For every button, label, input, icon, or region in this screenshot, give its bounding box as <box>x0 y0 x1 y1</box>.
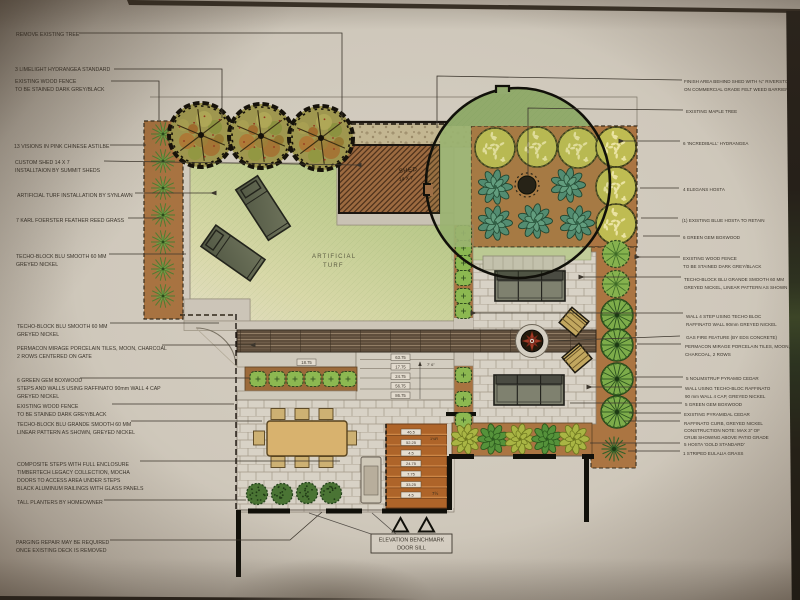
svg-text:TALL PLANTERS BY HOMEOWNER: TALL PLANTERS BY HOMEOWNER <box>17 500 103 506</box>
svg-text:5 NOLIMSTRUP PYRAMID CEDAR: 5 NOLIMSTRUP PYRAMID CEDAR <box>686 376 759 381</box>
svg-text:GREYED NICKEL: GREYED NICKEL <box>16 262 58 268</box>
svg-text:5 GREEN GEM BOXWOOD: 5 GREEN GEM BOXWOOD <box>685 402 743 407</box>
svg-text:FINISH AREA BEHIND SHED WITH ¾: FINISH AREA BEHIND SHED WITH ¾" RIVERSTO… <box>684 79 795 84</box>
svg-text:GREYED NICKEL: GREYED NICKEL <box>17 394 59 400</box>
svg-text:EXISTING MAPLE TREE: EXISTING MAPLE TREE <box>686 109 737 114</box>
svg-text:TURF: TURF <box>323 263 344 269</box>
svg-text:EXISTING WOOD FENCE: EXISTING WOOD FENCE <box>15 79 77 85</box>
svg-text:6 GREEN GEM BOXWOOD: 6 GREEN GEM BOXWOOD <box>17 378 82 384</box>
svg-text:CONSTRUCTION NOTE: MAX 3" OF: CONSTRUCTION NOTE: MAX 3" OF <box>684 428 760 433</box>
svg-text:GREYED NICKEL, LINEAR PATTERN: GREYED NICKEL, LINEAR PATTERN AS SHOWN <box>684 285 787 290</box>
svg-text:5 HOSTA 'GOLD STANDARD': 5 HOSTA 'GOLD STANDARD' <box>684 442 745 447</box>
svg-text:TECHO-BLOCK BLU GRANDE SMOOTH: TECHO-BLOCK BLU GRANDE SMOOTH 60 MM <box>684 277 784 282</box>
svg-text:PERMACON MIRAGE PORCELAIN TILE: PERMACON MIRAGE PORCELAIN TILES, MOON, <box>685 344 790 349</box>
svg-text:ELEVATION BENCHMARK: ELEVATION BENCHMARK <box>379 538 445 544</box>
svg-text:TECHO-BLOCK BLU SMOOTH 60 MM: TECHO-BLOCK BLU SMOOTH 60 MM <box>16 254 107 260</box>
svg-text:PARGING REPAIR MAY BE REQUIRED: PARGING REPAIR MAY BE REQUIRED <box>16 540 110 546</box>
svg-text:7.75: 7.75 <box>407 472 416 477</box>
svg-text:TECHO-BLOCK BLU GRANDE SMOOTH: TECHO-BLOCK BLU GRANDE SMOOTH 60 MM <box>17 422 131 428</box>
svg-text:BLACK ALUMINUM RAILINGS WITH G: BLACK ALUMINUM RAILINGS WITH GLASS PANEL… <box>17 486 144 492</box>
svg-text:TIMBERTECH LEGACY COLLECTION,: TIMBERTECH LEGACY COLLECTION, MOCHA <box>17 470 130 476</box>
svg-text:24.75: 24.75 <box>395 374 406 379</box>
svg-text:4.5: 4.5 <box>408 451 414 456</box>
svg-text:RAFFINATO WALL 90mm GREYED NIC: RAFFINATO WALL 90mm GREYED NICKEL <box>686 322 777 327</box>
svg-text:7 KARL FOERSTER FEATHER REED G: 7 KARL FOERSTER FEATHER REED GRASS <box>16 218 125 224</box>
svg-text:CHARCOAL, 2 ROWS: CHARCOAL, 2 ROWS <box>685 352 731 357</box>
svg-text:86.75: 86.75 <box>395 393 406 398</box>
svg-text:1¾R: 1¾R <box>430 437 438 441</box>
svg-text:ARTIFICIAL TURF INSTALLATION B: ARTIFICIAL TURF INSTALLATION BY SYNLAWN <box>17 193 133 199</box>
svg-text:56.75: 56.75 <box>395 384 406 389</box>
svg-text:EXISTING WOOD FENCE: EXISTING WOOD FENCE <box>17 404 79 410</box>
svg-text:13 VISIONS IN PINK CHINESE AST: 13 VISIONS IN PINK CHINESE ASTILBE <box>14 144 110 150</box>
svg-text:2 ROWS CENTERED ON GATE: 2 ROWS CENTERED ON GATE <box>17 354 92 360</box>
svg-text:WALL USING TECHO-BLOC RAFFINAT: WALL USING TECHO-BLOC RAFFINATO <box>685 386 771 391</box>
svg-text:RAFFINATO CURB, GREYED NICKEL: RAFFINATO CURB, GREYED NICKEL <box>684 421 763 426</box>
svg-text:LINEAR PATTERN AS SHOWN, GREYE: LINEAR PATTERN AS SHOWN, GREYED NICKEL <box>17 430 135 436</box>
svg-text:ARTIFICIAL: ARTIFICIAL <box>312 254 356 260</box>
svg-text:18.75: 18.75 <box>301 360 312 365</box>
svg-text:TO BE STAINED DARK GREY/BLACK: TO BE STAINED DARK GREY/BLACK <box>15 87 105 93</box>
svg-text:7½: 7½ <box>432 490 439 496</box>
svg-text:WALL 4 STEP USING TECHO BLOC: WALL 4 STEP USING TECHO BLOC <box>686 314 762 319</box>
svg-text:ON COMMERCIAL GRADE FELT WEED: ON COMMERCIAL GRADE FELT WEED BARRIER <box>684 87 789 92</box>
svg-text:17.75: 17.75 <box>395 365 406 370</box>
svg-text:90 mm WALL 4 CAP, GREYED NICK: 90 mm WALL 4 CAP, GREYED NICKEL <box>685 394 766 399</box>
svg-text:6 GREEN GEM BOXWOOD: 6 GREEN GEM BOXWOOD <box>683 235 741 240</box>
svg-text:3 LIMELIGHT HYDRANGEA STANDARD: 3 LIMELIGHT HYDRANGEA STANDARD <box>15 67 110 73</box>
svg-text:TECHO-BLOCK BLU SMOOTH 60 MM: TECHO-BLOCK BLU SMOOTH 60 MM <box>17 324 108 330</box>
svg-text:6 'INCREDIBALL' HYDRANGEA: 6 'INCREDIBALL' HYDRANGEA <box>683 141 749 146</box>
svg-text:4.5: 4.5 <box>408 493 414 498</box>
svg-text:7' 6": 7' 6" <box>427 362 435 367</box>
svg-text:4 ELEGANS HOSTA: 4 ELEGANS HOSTA <box>683 187 726 192</box>
svg-text:INSTALLTAION BY SUMMIT SHEDS: INSTALLTAION BY SUMMIT SHEDS <box>15 168 101 174</box>
svg-text:TO BE STAINED DARK GREY/BLACK: TO BE STAINED DARK GREY/BLACK <box>17 412 107 418</box>
svg-text:24.75: 24.75 <box>406 461 417 466</box>
svg-text:63.75: 63.75 <box>395 355 406 360</box>
svg-text:GAS FIRE FEATURE (BY EDS CONCR: GAS FIRE FEATURE (BY EDS CONCRETE) <box>686 335 778 340</box>
svg-text:EXISTING WOOD FENCE: EXISTING WOOD FENCE <box>683 256 737 261</box>
svg-text:CRUB SHOWING ABOVE PATIO GRADE: CRUB SHOWING ABOVE PATIO GRADE <box>684 435 769 440</box>
svg-text:COMPOSITE STEPS WITH FULL ENCL: COMPOSITE STEPS WITH FULL ENCLOSURE <box>17 462 129 468</box>
svg-text:DOORS TO ACCESS AREA UNDER STE: DOORS TO ACCESS AREA UNDER STEPS <box>17 478 121 484</box>
svg-text:ONCE EXISTING DECK IS REMOVED: ONCE EXISTING DECK IS REMOVED <box>16 548 107 554</box>
svg-text:DOOR SILL: DOOR SILL <box>397 546 426 552</box>
svg-text:PERMACON MIRAGE PORCELAIN TILE: PERMACON MIRAGE PORCELAIN TILES, MOON, C… <box>17 346 167 352</box>
svg-text:GREYED NICKEL: GREYED NICKEL <box>17 332 59 338</box>
svg-text:1 STRIPED EULALIA GRASS: 1 STRIPED EULALIA GRASS <box>683 451 743 456</box>
svg-text:CUSTOM SHED 14 X 7: CUSTOM SHED 14 X 7 <box>15 160 70 166</box>
svg-text:EXISTING PYRAMIDAL CEDAR: EXISTING PYRAMIDAL CEDAR <box>684 412 750 417</box>
svg-text:(1) EXISTING BLUE HOSTA TO RET: (1) EXISTING BLUE HOSTA TO RETAIN <box>682 218 765 223</box>
svg-text:REMOVE EXISTING TREE: REMOVE EXISTING TREE <box>16 32 80 38</box>
svg-text:33.25: 33.25 <box>406 482 417 487</box>
svg-text:STEPS AND WALLS USING RAFFINAT: STEPS AND WALLS USING RAFFINATO 90mm WAL… <box>17 386 161 392</box>
svg-text:46.5: 46.5 <box>407 430 416 435</box>
svg-text:TO BE STAINED DARK GREY/BLACK: TO BE STAINED DARK GREY/BLACK <box>683 264 761 269</box>
svg-text:52.25: 52.25 <box>406 440 417 445</box>
